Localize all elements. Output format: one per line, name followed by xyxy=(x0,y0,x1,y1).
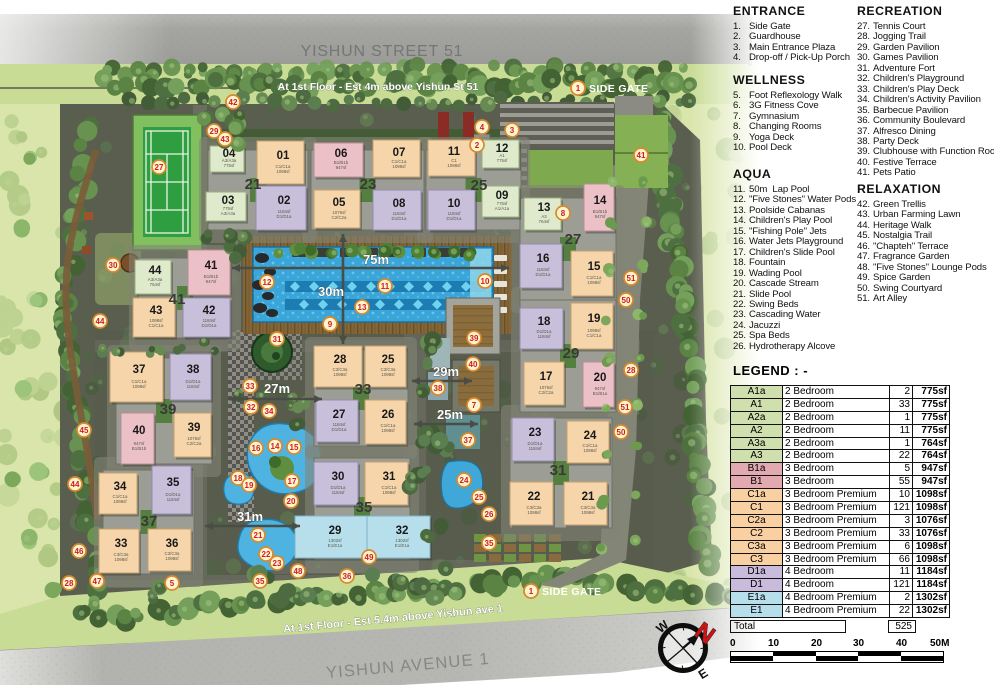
svg-text:07: 07 xyxy=(393,147,406,159)
svg-text:1098sf: 1098sf xyxy=(113,499,127,504)
svg-text:48: 48 xyxy=(294,567,303,576)
svg-text:8: 8 xyxy=(561,209,566,218)
svg-text:1184sf: 1184sf xyxy=(167,497,181,502)
svg-text:17: 17 xyxy=(288,477,297,486)
svg-text:1098sf: 1098sf xyxy=(587,280,601,285)
svg-text:41: 41 xyxy=(205,260,218,272)
svg-text:1: 1 xyxy=(529,587,534,596)
svg-text:39: 39 xyxy=(470,334,479,343)
svg-text:36: 36 xyxy=(343,572,352,581)
svg-text:D1/D1a: D1/D1a xyxy=(447,216,462,221)
svg-text:14: 14 xyxy=(271,442,280,451)
svg-text:C1/C1a: C1/C1a xyxy=(149,323,164,328)
svg-text:C1/C1a: C1/C1a xyxy=(587,333,602,338)
svg-text:24: 24 xyxy=(584,430,597,442)
svg-text:C2/C2a: C2/C2a xyxy=(332,215,347,220)
svg-text:16: 16 xyxy=(252,444,261,453)
svg-text:26: 26 xyxy=(485,510,494,519)
svg-text:35: 35 xyxy=(485,539,494,548)
svg-text:38: 38 xyxy=(434,384,443,393)
svg-text:41: 41 xyxy=(169,291,186,308)
svg-text:1098sf: 1098sf xyxy=(382,490,396,495)
svg-text:1184sf: 1184sf xyxy=(538,334,552,339)
svg-text:21: 21 xyxy=(245,176,262,193)
svg-text:51: 51 xyxy=(627,274,636,283)
svg-text:D1/D1a: D1/D1a xyxy=(277,214,292,219)
svg-text:02: 02 xyxy=(278,195,291,207)
svg-text:28: 28 xyxy=(334,354,347,366)
svg-text:16: 16 xyxy=(537,253,550,265)
svg-text:45: 45 xyxy=(80,426,89,435)
svg-text:SIDE GATE: SIDE GATE xyxy=(589,83,648,95)
svg-text:1098sf: 1098sf xyxy=(583,448,597,453)
svg-text:1098sf: 1098sf xyxy=(381,372,395,377)
svg-text:30: 30 xyxy=(109,261,118,270)
svg-text:18: 18 xyxy=(234,474,243,483)
svg-text:31: 31 xyxy=(550,462,567,479)
svg-text:D1/D1a: D1/D1a xyxy=(536,272,551,277)
svg-text:37: 37 xyxy=(133,364,146,376)
svg-text:29: 29 xyxy=(563,345,580,362)
svg-text:1184sf: 1184sf xyxy=(529,446,543,451)
svg-text:25: 25 xyxy=(382,354,395,366)
svg-text:28: 28 xyxy=(65,579,74,588)
svg-text:YISHUN STREET 51: YISHUN STREET 51 xyxy=(301,43,464,60)
svg-text:49: 49 xyxy=(365,553,374,562)
svg-text:947sf: 947sf xyxy=(336,165,348,170)
svg-text:75m: 75m xyxy=(363,252,389,267)
svg-text:1098sf: 1098sf xyxy=(132,384,146,389)
svg-text:33: 33 xyxy=(115,538,128,550)
svg-text:17: 17 xyxy=(540,371,553,383)
svg-text:35: 35 xyxy=(256,577,265,586)
svg-text:23: 23 xyxy=(360,176,377,193)
svg-text:32: 32 xyxy=(247,403,256,412)
svg-text:At 1st Floor - Est 4m above Yi: At 1st Floor - Est 4m above Yishun St 51 xyxy=(278,81,479,93)
svg-text:32: 32 xyxy=(396,525,409,537)
svg-text:42: 42 xyxy=(203,305,216,317)
svg-text:1098sf: 1098sf xyxy=(381,428,395,433)
svg-text:1098sf: 1098sf xyxy=(276,169,290,174)
svg-text:5: 5 xyxy=(170,579,175,588)
svg-text:22: 22 xyxy=(262,550,271,559)
svg-text:08: 08 xyxy=(393,198,406,210)
svg-text:3: 3 xyxy=(510,126,515,135)
svg-text:B1/B1b: B1/B1b xyxy=(132,446,147,451)
svg-text:01: 01 xyxy=(277,150,290,162)
svg-text:36: 36 xyxy=(166,538,179,550)
svg-text:764sf: 764sf xyxy=(539,219,551,224)
svg-text:43: 43 xyxy=(221,135,230,144)
svg-text:51: 51 xyxy=(621,403,630,412)
svg-text:1098sf: 1098sf xyxy=(527,510,541,515)
svg-text:25: 25 xyxy=(475,493,484,502)
svg-text:47: 47 xyxy=(93,577,102,586)
svg-text:E1/E1a: E1/E1a xyxy=(328,543,343,548)
svg-text:44: 44 xyxy=(96,317,105,326)
svg-text:1184sf: 1184sf xyxy=(332,490,346,495)
svg-text:27: 27 xyxy=(333,409,346,421)
svg-text:46: 46 xyxy=(75,547,84,556)
svg-text:30m: 30m xyxy=(318,284,344,299)
svg-text:E1/E1a: E1/E1a xyxy=(395,543,410,548)
svg-text:18: 18 xyxy=(538,316,551,328)
svg-text:1098sf: 1098sf xyxy=(333,372,347,377)
svg-text:28: 28 xyxy=(627,366,636,375)
svg-text:11: 11 xyxy=(381,282,390,291)
svg-text:39: 39 xyxy=(160,401,177,418)
svg-text:29: 29 xyxy=(329,525,342,537)
svg-text:15: 15 xyxy=(588,261,601,273)
svg-text:26: 26 xyxy=(382,409,395,421)
svg-text:42: 42 xyxy=(229,98,238,107)
svg-text:44: 44 xyxy=(149,265,162,277)
svg-text:2: 2 xyxy=(475,141,480,150)
svg-text:7: 7 xyxy=(472,401,477,410)
svg-text:29m: 29m xyxy=(433,364,459,379)
svg-text:34: 34 xyxy=(114,481,127,493)
svg-text:29: 29 xyxy=(210,127,219,136)
svg-text:13: 13 xyxy=(538,202,551,214)
svg-text:05: 05 xyxy=(333,197,346,209)
svg-text:20: 20 xyxy=(594,372,607,384)
svg-text:1098sf: 1098sf xyxy=(447,163,461,168)
svg-text:19: 19 xyxy=(588,313,601,325)
svg-text:27: 27 xyxy=(565,231,582,248)
svg-text:35: 35 xyxy=(167,477,180,489)
svg-text:D1/D1a: D1/D1a xyxy=(332,427,347,432)
svg-text:947sf: 947sf xyxy=(206,279,218,284)
svg-text:23: 23 xyxy=(529,427,542,439)
svg-text:764sf: 764sf xyxy=(150,282,162,287)
svg-text:33: 33 xyxy=(246,382,255,391)
svg-text:775sf: 775sf xyxy=(224,163,236,168)
svg-text:775sf: 775sf xyxy=(497,158,509,163)
svg-text:50: 50 xyxy=(622,296,631,305)
svg-text:15: 15 xyxy=(290,443,299,452)
svg-text:1098sf: 1098sf xyxy=(165,556,179,561)
svg-text:19: 19 xyxy=(245,481,254,490)
svg-text:A1/A1a: A1/A1a xyxy=(495,206,510,211)
svg-text:40: 40 xyxy=(469,360,478,369)
svg-text:44: 44 xyxy=(71,480,80,489)
svg-text:SIDE GATE: SIDE GATE xyxy=(542,586,601,598)
svg-text:14: 14 xyxy=(594,195,607,207)
svg-text:1098sf: 1098sf xyxy=(392,164,406,169)
svg-text:35: 35 xyxy=(356,499,373,516)
svg-text:11: 11 xyxy=(448,146,461,158)
svg-text:37: 37 xyxy=(141,513,158,530)
svg-text:D1/D1a: D1/D1a xyxy=(202,323,217,328)
svg-text:947sf: 947sf xyxy=(595,214,607,219)
svg-text:1: 1 xyxy=(576,84,581,93)
svg-text:39: 39 xyxy=(188,422,201,434)
svg-text:34: 34 xyxy=(265,407,274,416)
svg-text:43: 43 xyxy=(150,305,163,317)
svg-text:24: 24 xyxy=(460,476,469,485)
svg-text:37: 37 xyxy=(464,436,473,445)
svg-text:06: 06 xyxy=(335,148,348,160)
svg-text:38: 38 xyxy=(187,364,200,376)
svg-text:C2/C2a: C2/C2a xyxy=(187,441,202,446)
svg-text:22: 22 xyxy=(528,491,541,503)
svg-text:41: 41 xyxy=(637,151,646,160)
svg-text:50: 50 xyxy=(617,428,626,437)
svg-text:27: 27 xyxy=(155,163,164,172)
svg-text:20: 20 xyxy=(287,497,296,506)
svg-text:33: 33 xyxy=(355,381,372,398)
svg-text:31: 31 xyxy=(273,335,282,344)
svg-text:A3/A3a: A3/A3a xyxy=(221,211,236,216)
svg-text:4: 4 xyxy=(480,123,485,132)
svg-text:21: 21 xyxy=(254,531,263,540)
svg-text:C2/C2a: C2/C2a xyxy=(539,390,554,395)
svg-text:30: 30 xyxy=(332,471,345,483)
svg-text:1184sf: 1184sf xyxy=(187,384,201,389)
svg-text:12: 12 xyxy=(263,278,272,287)
svg-text:21: 21 xyxy=(582,491,595,503)
svg-text:1098sf: 1098sf xyxy=(114,557,128,562)
svg-text:27m: 27m xyxy=(264,381,290,396)
svg-text:10: 10 xyxy=(448,198,461,210)
svg-text:13: 13 xyxy=(358,303,367,312)
svg-text:10: 10 xyxy=(481,277,490,286)
svg-text:23: 23 xyxy=(273,559,282,568)
svg-text:31: 31 xyxy=(383,471,396,483)
svg-text:1098sf: 1098sf xyxy=(581,510,595,515)
svg-text:9: 9 xyxy=(328,320,333,329)
svg-text:40: 40 xyxy=(133,425,146,437)
svg-text:B1/B1a: B1/B1a xyxy=(593,391,608,396)
svg-text:D1/D1a: D1/D1a xyxy=(392,216,407,221)
svg-text:E: E xyxy=(696,666,710,682)
svg-text:25m: 25m xyxy=(437,407,463,422)
svg-text:31m: 31m xyxy=(237,509,263,524)
svg-text:25: 25 xyxy=(471,177,488,194)
